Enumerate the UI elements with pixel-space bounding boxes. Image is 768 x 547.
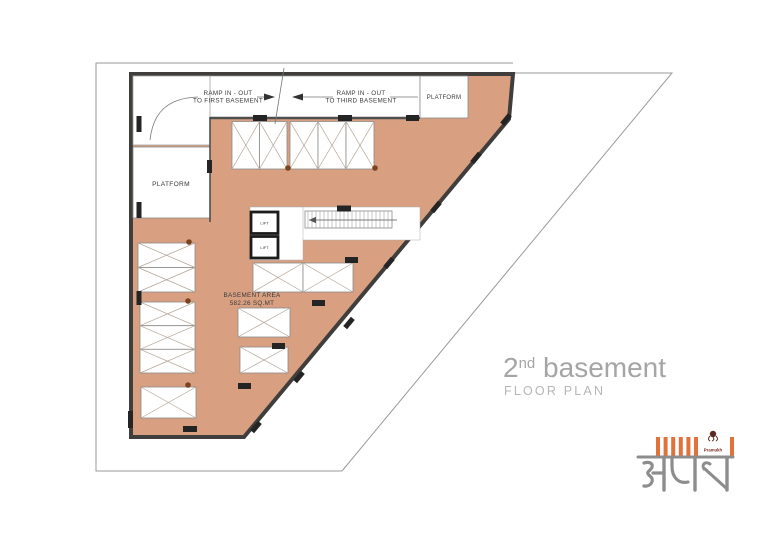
sheet-title: 2nd basement FLOOR PLAN xyxy=(503,352,666,398)
title-name: basement xyxy=(535,352,666,383)
parking-stalls-top xyxy=(232,122,374,170)
floor-plan-page: LIFT LIFT xyxy=(0,0,768,547)
ramp-first-label-line2: TO FIRST BASEMENT xyxy=(193,98,263,105)
platform-top-label: PLATFORM xyxy=(427,95,462,101)
stair-treads xyxy=(308,211,388,228)
basement-area-label-line1: BASEMENT AREA xyxy=(224,292,281,299)
wordmark-devanagari xyxy=(638,457,733,490)
basement-area-label-line2: 582.26 SQ.MT xyxy=(230,300,275,307)
title-suffix: nd xyxy=(519,355,536,372)
staircase xyxy=(305,211,392,228)
lift-label-2: LIFT xyxy=(260,245,269,250)
ramp-third-label-line2: TO THIRD BASEMENT xyxy=(326,98,397,105)
brand-logo: Pramukh xyxy=(638,431,734,490)
floor-plan-drawing: LIFT LIFT xyxy=(0,0,768,547)
title-number: 2 xyxy=(503,352,519,383)
ramp-first-label-line1: RAMP IN - OUT xyxy=(204,90,253,97)
logo-bars-icon xyxy=(656,437,734,456)
lift-label-1: LIFT xyxy=(260,221,269,226)
ramp-third-label-line1: RAMP IN - OUT xyxy=(337,90,386,97)
brand-name-label: Pramukh xyxy=(704,448,723,453)
ganesha-emblem-icon xyxy=(709,431,718,441)
platform-left-label: PLATFORM xyxy=(152,181,190,188)
page-title: 2nd basement xyxy=(503,352,666,383)
page-subtitle: FLOOR PLAN xyxy=(504,384,605,398)
ramp-left-strip xyxy=(133,76,210,145)
